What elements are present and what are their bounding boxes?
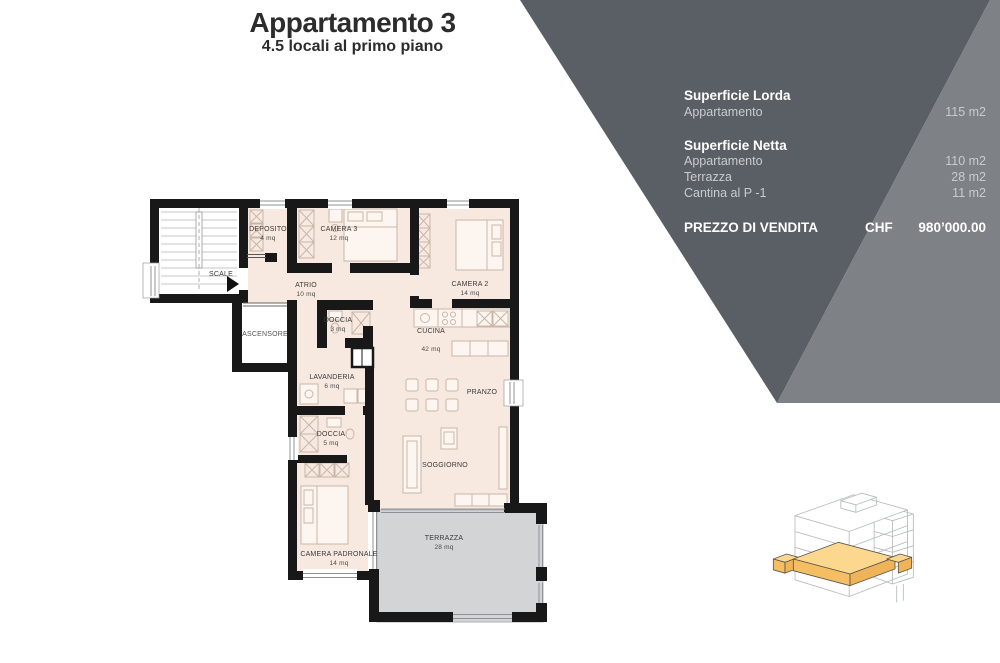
room-label-doccia5: DOCCIA 5 mq — [317, 431, 345, 448]
room-label-lavanderia: LAVANDERIA 6 mq — [309, 374, 354, 391]
room-label-camera3: CAMERA 3 12 mq — [321, 226, 358, 243]
room-label-terrazza: TERRAZZA 28 mq — [425, 535, 464, 552]
room-label-camera2: CAMERA 2 14 mq — [452, 281, 489, 298]
room-label-atrio: ATRIO 10 mq — [295, 282, 317, 299]
room-label-cucina: CUCINA 42 mq — [417, 328, 445, 354]
room-label-camera-padronale: CAMERA PADRONALE 14 mq — [300, 551, 377, 568]
room-label-doccia3: DOCCIA 3 mq — [324, 317, 352, 334]
room-label-soggiorno: SOGGIORNO — [422, 462, 468, 471]
terrace — [377, 510, 543, 622]
room-label-ascensore: ASCENSORE — [242, 331, 288, 340]
room-label-deposito: DEPOSITO 4 mq — [249, 226, 287, 243]
room-label-pranzo: PRANZO — [467, 389, 497, 398]
room-label-scale: SCALE — [209, 271, 233, 280]
highlighted-floor — [773, 542, 911, 585]
building-locator — [770, 484, 920, 624]
flyer-page: Appartamento 3 4.5 locali al primo piano… — [0, 0, 1000, 663]
